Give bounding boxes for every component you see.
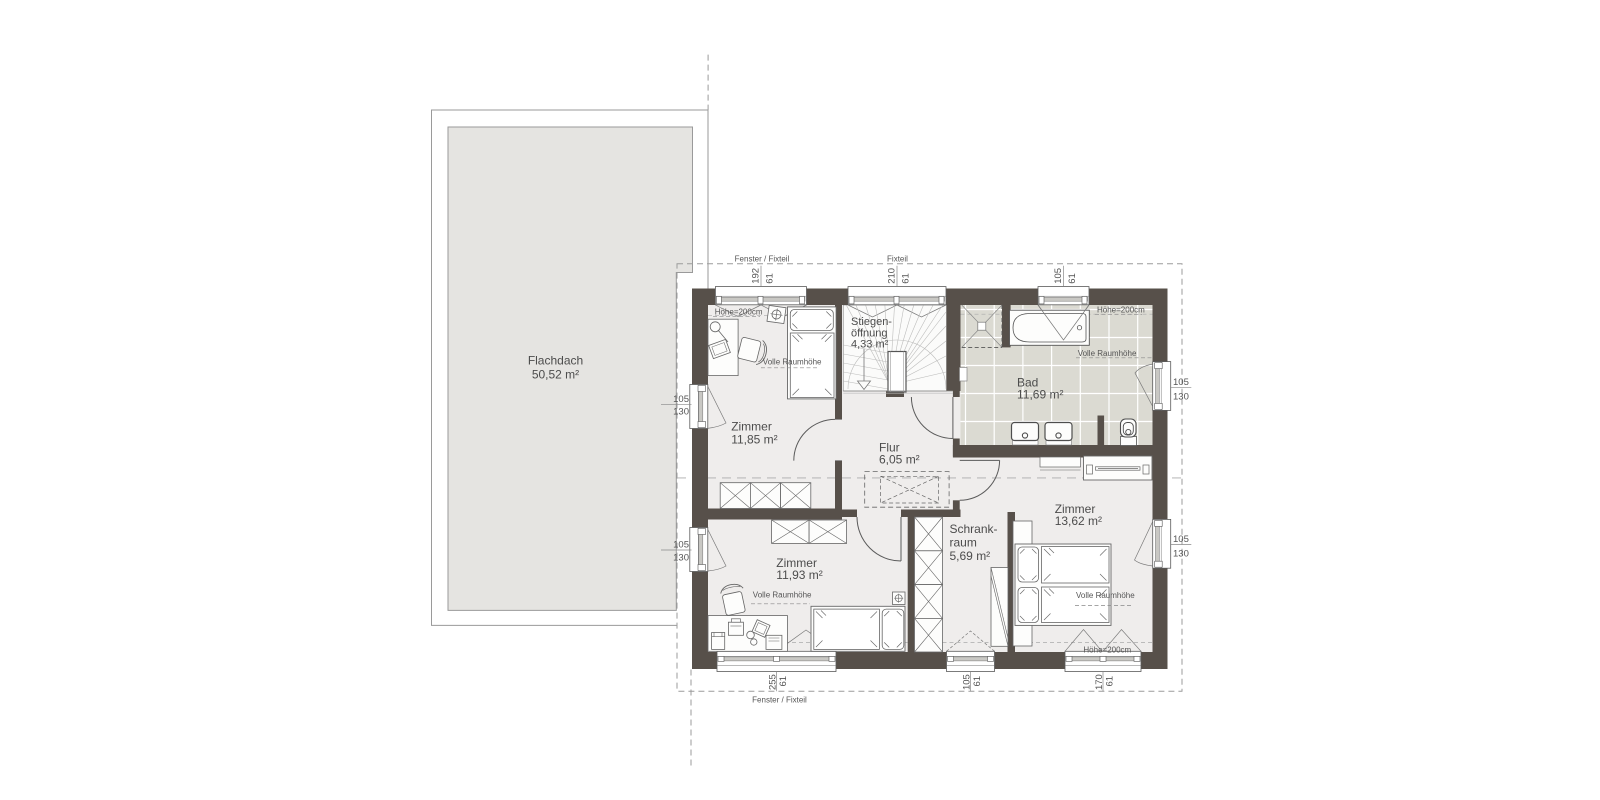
svg-text:Fixteil: Fixteil [887, 255, 908, 264]
svg-text:61: 61 [765, 273, 776, 284]
svg-text:Volle Raumhöhe: Volle Raumhöhe [1076, 591, 1135, 600]
svg-text:105: 105 [673, 394, 689, 405]
svg-text:Flachdach: Flachdach [528, 354, 583, 368]
svg-text:Stiegen-: Stiegen- [851, 316, 892, 328]
svg-text:105: 105 [1173, 534, 1189, 545]
svg-text:6,05 m²: 6,05 m² [879, 453, 920, 467]
svg-text:61: 61 [778, 676, 789, 687]
svg-text:105: 105 [1053, 268, 1064, 284]
svg-text:61: 61 [1105, 676, 1116, 687]
svg-text:130: 130 [673, 553, 689, 564]
svg-text:130: 130 [673, 407, 689, 418]
svg-text:105: 105 [673, 540, 689, 551]
svg-text:170: 170 [1094, 674, 1105, 690]
svg-text:Zimmer: Zimmer [731, 420, 772, 434]
svg-text:11,85 m²: 11,85 m² [731, 433, 777, 447]
svg-text:192: 192 [750, 268, 761, 284]
svg-text:raum: raum [950, 536, 977, 550]
svg-text:61: 61 [901, 273, 912, 284]
svg-text:105: 105 [1173, 377, 1189, 388]
svg-text:Höhe=200cm: Höhe=200cm [715, 308, 763, 317]
svg-text:5,69 m²: 5,69 m² [950, 549, 991, 563]
svg-text:50,52 m²: 50,52 m² [532, 368, 579, 382]
svg-text:Schrank-: Schrank- [950, 522, 998, 536]
svg-text:Volle Raumhöhe: Volle Raumhöhe [763, 358, 822, 367]
svg-text:255: 255 [767, 674, 778, 690]
svg-text:13,62 m²: 13,62 m² [1055, 514, 1102, 528]
svg-text:11,93 m²: 11,93 m² [776, 568, 822, 582]
svg-text:4,33 m²: 4,33 m² [851, 339, 889, 351]
svg-text:Höhe=200cm: Höhe=200cm [1083, 646, 1131, 655]
svg-text:210: 210 [886, 268, 897, 284]
svg-text:Höhe=200cm: Höhe=200cm [1097, 306, 1145, 315]
svg-text:61: 61 [972, 676, 983, 687]
svg-text:Volle Raumhöhe: Volle Raumhöhe [1078, 349, 1137, 358]
svg-text:130: 130 [1173, 549, 1189, 560]
svg-text:Volle Raumhöhe: Volle Raumhöhe [753, 591, 812, 600]
svg-text:Fenster / Fixteil: Fenster / Fixteil [735, 255, 790, 264]
svg-text:105: 105 [961, 674, 972, 690]
svg-text:61: 61 [1067, 273, 1078, 284]
svg-text:130: 130 [1173, 392, 1189, 403]
svg-text:Fenster / Fixteil: Fenster / Fixteil [752, 696, 807, 705]
svg-text:11,69 m²: 11,69 m² [1017, 388, 1063, 402]
